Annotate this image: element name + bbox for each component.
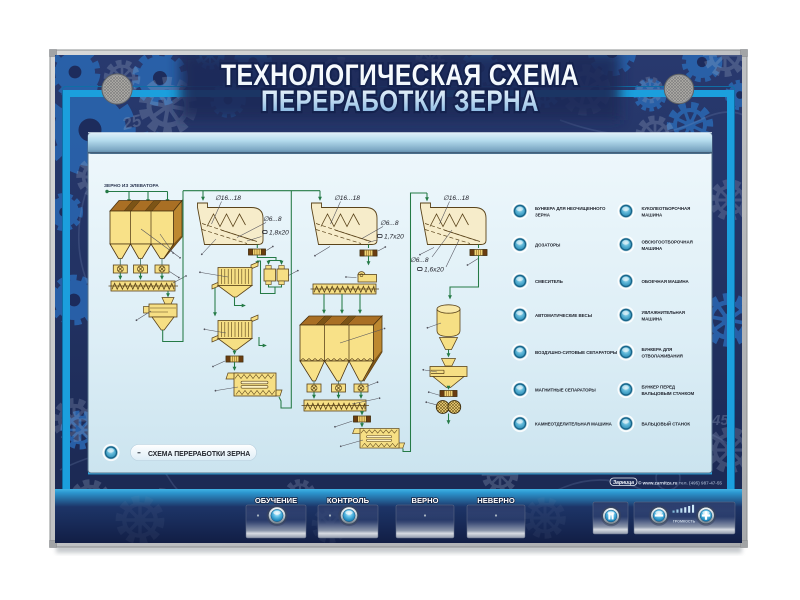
svg-text:ОБУЧЕНИЕ: ОБУЧЕНИЕ	[255, 496, 297, 505]
svg-text:∅16...18: ∅16...18	[443, 195, 469, 202]
svg-text:ВАЛЬЦОВЫМ СТАНКОМ: ВАЛЬЦОВЫМ СТАНКОМ	[642, 391, 695, 396]
svg-text:© www.zarnitza.ru тел. (495) 9: © www.zarnitza.ru тел. (495) 987-47-55	[638, 479, 722, 485]
svg-text:Зарница: Зарница	[613, 480, 634, 486]
svg-text:1,6х20: 1,6х20	[424, 267, 444, 274]
svg-text:ОВСЮГООТБОРОЧНАЯ: ОВСЮГООТБОРОЧНАЯ	[642, 240, 693, 245]
svg-text:КАМНЕОТДЕЛИТЕЛЬНАЯ МАШИНА: КАМНЕОТДЕЛИТЕЛЬНАЯ МАШИНА	[535, 422, 613, 427]
svg-text:СМЕСИТЕЛЬ: СМЕСИТЕЛЬ	[535, 279, 564, 284]
svg-text:ВОЗДУШНО-СИТОВЫЕ СЕПАРАТОРЫ: ВОЗДУШНО-СИТОВЫЕ СЕПАРАТОРЫ	[535, 350, 618, 355]
svg-text:ОТВОЛАЖИВАНИЯ: ОТВОЛАЖИВАНИЯ	[642, 354, 683, 359]
svg-text:МАШИНА: МАШИНА	[642, 213, 664, 218]
svg-text:ПЕРЕРАБОТКИ ЗЕРНА: ПЕРЕРАБОТКИ ЗЕРНА	[261, 85, 539, 118]
svg-text:∅16...18: ∅16...18	[215, 195, 241, 202]
svg-text:ВЕРНО: ВЕРНО	[411, 496, 438, 505]
svg-text:ВАЛЬЦОВЫЙ СТАНОК: ВАЛЬЦОВЫЙ СТАНОК	[642, 420, 691, 427]
svg-text:МАШИНА: МАШИНА	[642, 317, 664, 322]
svg-text:КУКОЛЕОТБОРОЧНАЯ: КУКОЛЕОТБОРОЧНАЯ	[642, 206, 691, 211]
svg-text:СХЕМА ПЕРЕРАБОТКИ ЗЕРНА: СХЕМА ПЕРЕРАБОТКИ ЗЕРНА	[148, 451, 250, 458]
svg-text:ОБОЕЧНАЯ МАШИНА: ОБОЕЧНАЯ МАШИНА	[642, 279, 690, 284]
svg-text:∅6...8: ∅6...8	[263, 216, 282, 223]
svg-text:ЗЕРНО ИЗ ЭЛЕВАТОРА: ЗЕРНО ИЗ ЭЛЕВАТОРА	[104, 183, 159, 189]
svg-text:45: 45	[711, 412, 729, 429]
svg-text:МАШИНА: МАШИНА	[642, 246, 664, 251]
svg-text:КОНТРОЛЬ: КОНТРОЛЬ	[327, 496, 370, 505]
svg-text:МАГНИТНЫЕ СЕПАРАТОРЫ: МАГНИТНЫЕ СЕПАРАТОРЫ	[535, 388, 596, 393]
svg-text:БУНКЕРА ДЛЯ: БУНКЕРА ДЛЯ	[642, 347, 673, 352]
svg-text:БУНКЕР ПЕРЕД: БУНКЕР ПЕРЕД	[642, 385, 676, 390]
svg-text:НЕВЕРНО: НЕВЕРНО	[477, 496, 515, 505]
svg-text:∅6...8: ∅6...8	[380, 220, 399, 227]
svg-text:УВЛАЖНИТЕЛЬНАЯ: УВЛАЖНИТЕЛЬНАЯ	[642, 310, 685, 315]
svg-text:АВТОМАТИЧЕСКИЕ ВЕСЫ: АВТОМАТИЧЕСКИЕ ВЕСЫ	[535, 313, 593, 318]
svg-text:ЗЕРНА: ЗЕРНА	[535, 213, 551, 218]
svg-text:∅6...8: ∅6...8	[410, 257, 429, 264]
svg-text:ГРОМКОСТЬ: ГРОМКОСТЬ	[673, 520, 696, 524]
svg-text:∅16...18: ∅16...18	[334, 195, 360, 202]
svg-text:1,8х20: 1,8х20	[269, 230, 289, 237]
svg-text:ДОЗАТОРЫ: ДОЗАТОРЫ	[535, 243, 561, 248]
svg-text:БУНКЕРА ДЛЯ НЕОЧИЩЕННОГО: БУНКЕРА ДЛЯ НЕОЧИЩЕННОГО	[535, 206, 606, 211]
svg-text:1,7х20: 1,7х20	[384, 234, 404, 241]
